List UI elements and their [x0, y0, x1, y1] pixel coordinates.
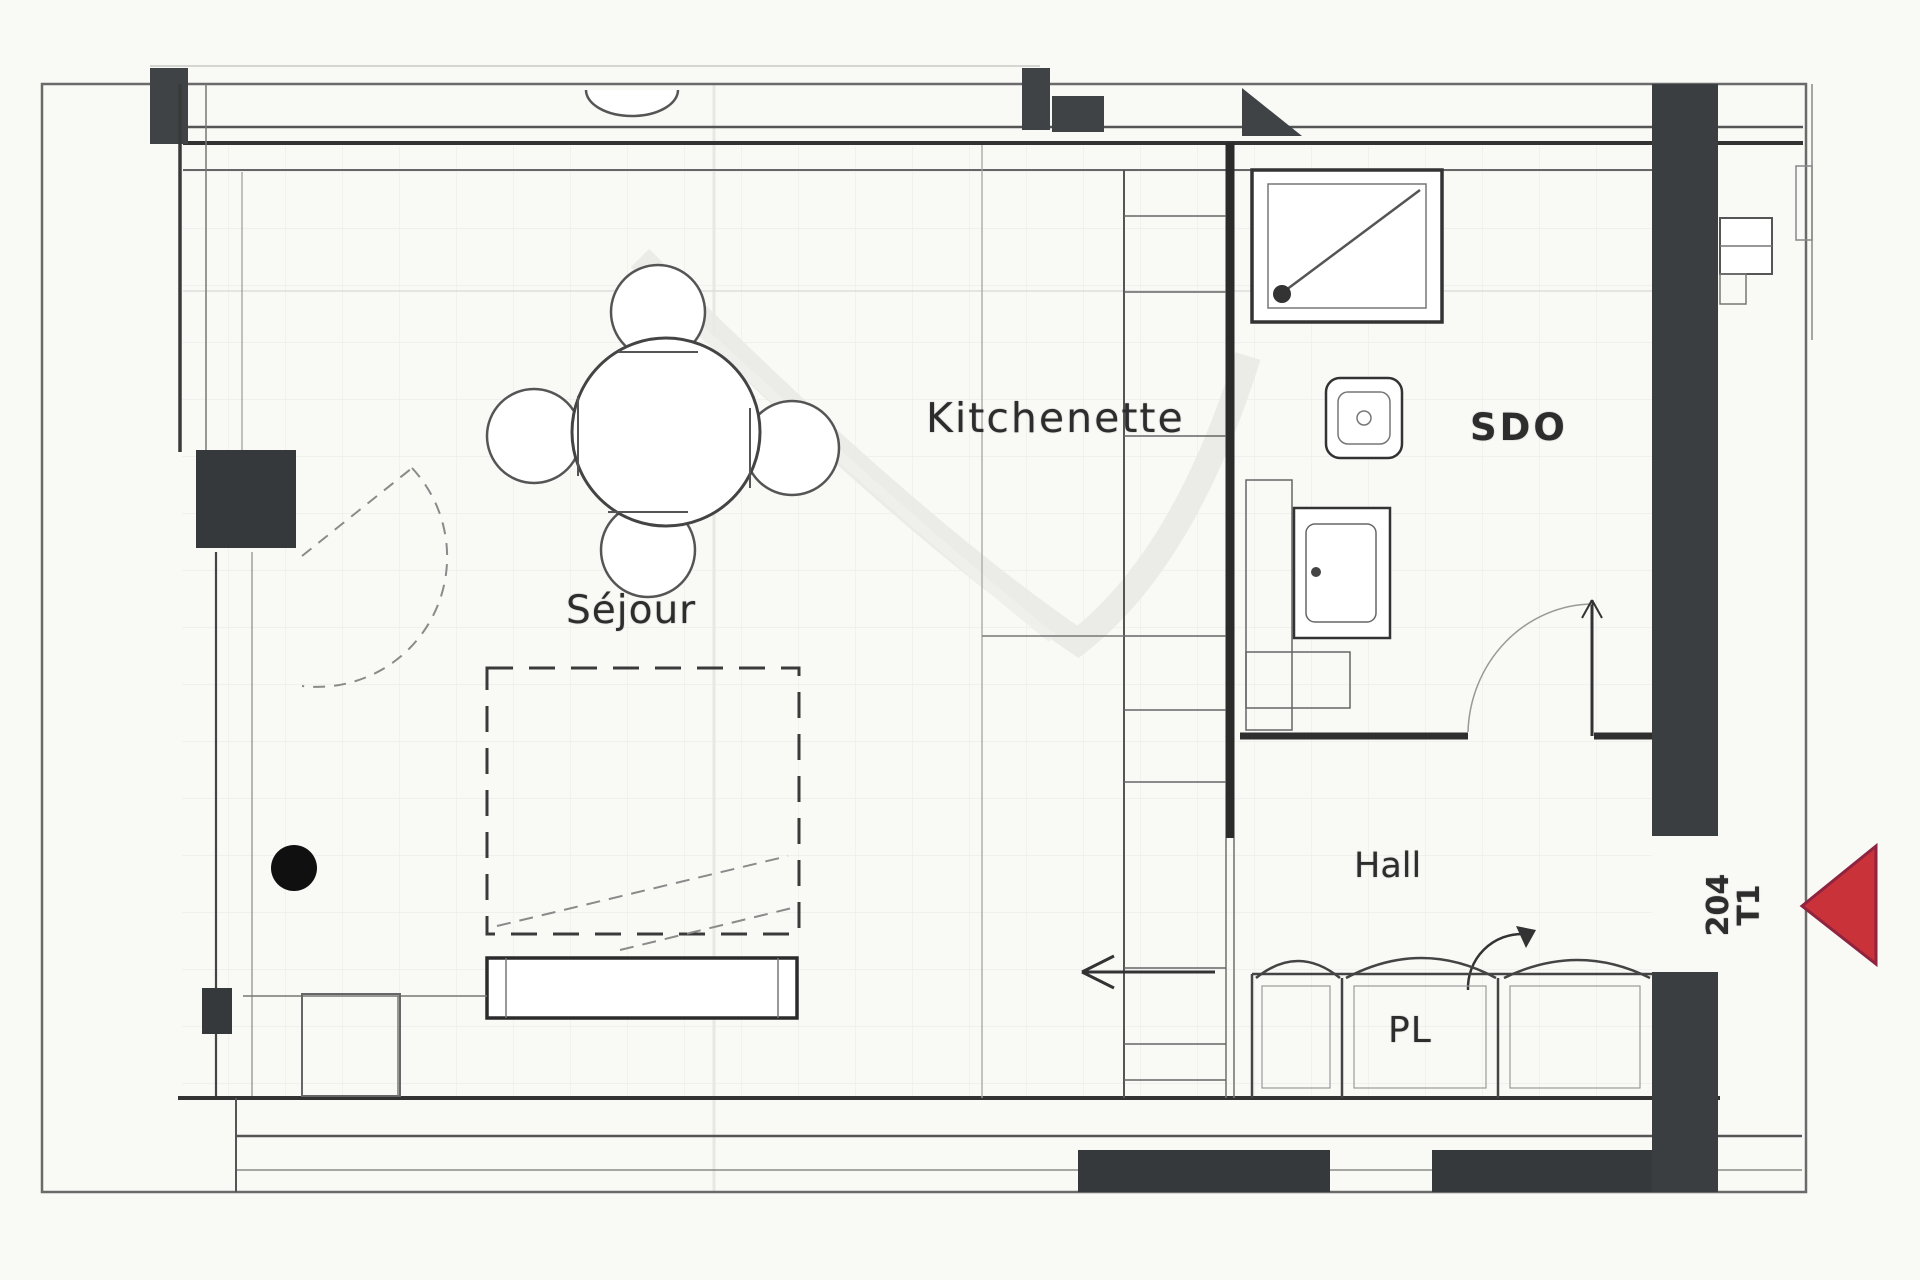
unit-marker-triangle-icon — [1802, 846, 1876, 964]
wall-wedge — [1242, 88, 1302, 136]
unit-type: T1 — [1735, 835, 1766, 975]
shower-icon — [1252, 170, 1442, 322]
wc-icon — [1326, 378, 1402, 458]
wall-pier-top-center — [1022, 68, 1050, 130]
room-label-pl: PL — [1388, 1010, 1432, 1051]
sofa-icon — [487, 958, 797, 1018]
room-label-sdo: SDO — [1470, 406, 1568, 449]
wall-pier-left — [196, 450, 296, 548]
wall-pier-left-lower — [202, 988, 232, 1034]
bottom-wall-dark-segment-2 — [1432, 1150, 1660, 1192]
unit-label: 204 T1 — [1704, 835, 1766, 975]
column-dot-icon — [271, 845, 317, 891]
unit-number: 204 — [1704, 835, 1735, 975]
bottom-wall — [178, 1098, 1802, 1192]
wall-pier-top-center-2 — [1052, 96, 1104, 132]
floorplan-page: Séjour Kitchenette SDO Hall PL 204 T1 — [0, 0, 1920, 1280]
room-label-hall: Hall — [1354, 846, 1421, 886]
floorplan-drawing — [0, 0, 1920, 1280]
radiator-arc-icon — [586, 90, 678, 116]
room-label-sejour: Séjour — [566, 588, 696, 633]
bottom-wall-dark-segment — [1078, 1150, 1330, 1192]
wall-pier-top-left — [150, 68, 188, 144]
right-wall — [1652, 84, 1812, 1192]
room-label-kitchenette: Kitchenette — [926, 394, 1185, 442]
